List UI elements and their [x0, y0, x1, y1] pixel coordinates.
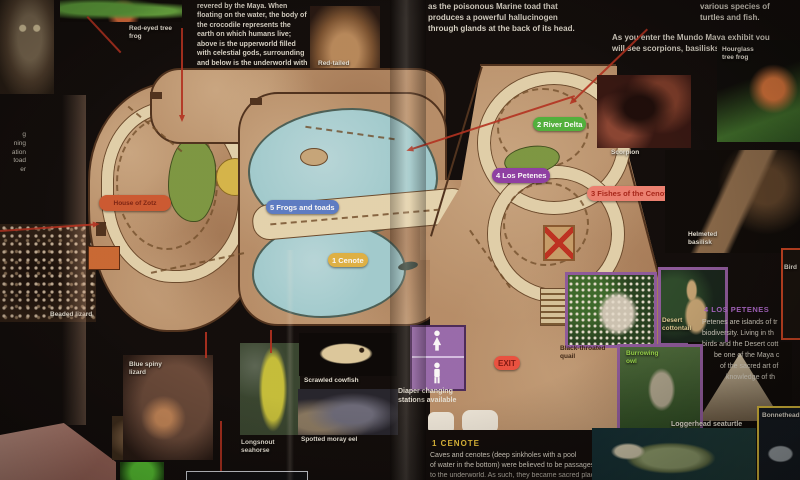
los-petenes-line: knowledge of th — [726, 373, 800, 382]
los-petenes-line: biodiversity. Living in th — [702, 329, 800, 338]
female-restroom-icon — [430, 330, 444, 357]
black-throated-quail-photo — [565, 272, 657, 348]
bonnethead-shark-label: Bonnethead shark — [762, 412, 800, 420]
station-1-cenote: 1 Cenote — [328, 253, 368, 267]
desert-cottontail-label: Desert cottontail — [662, 317, 696, 333]
house-of-zotz-label: House of Zotz — [99, 195, 171, 211]
exit-label: EXIT — [494, 356, 520, 370]
los-petenes-line: of the sacred art of — [720, 362, 800, 371]
station-2-river-delta: 2 River Delta — [533, 117, 586, 131]
cut-photo-label-fragment: Bird — [784, 264, 800, 272]
cenote-heading: 1 Cenote — [432, 439, 480, 450]
station-5-frogs-and-toads: 5 Frogs and toads — [266, 200, 339, 214]
leader-line — [270, 330, 272, 353]
station-3-fishes-of-the-cenote: 3 Fishes of the Cenote — [587, 186, 675, 201]
scorpion-label: Scorpion — [611, 149, 655, 157]
leader-line — [181, 28, 183, 116]
los-petenes-line: birds and the Desert cott — [702, 340, 800, 349]
station-4-los-petenes: 4 Los Petenes — [492, 168, 550, 183]
book-spread-photo: g ning ation toad er Beaded lizard Blue … — [0, 0, 800, 480]
green-pond — [168, 138, 216, 222]
leader-line — [205, 332, 207, 358]
los-petenes-heading: 4 Los Petenes — [704, 305, 769, 315]
los-petenes-line: Petenes are islands of tr — [702, 318, 800, 327]
map-structure — [150, 92, 162, 99]
helmeted-basilisk-label: Helmeted basilisk — [688, 231, 724, 247]
helmeted-basilisk-photo — [665, 150, 800, 253]
page-edge-band — [62, 95, 86, 425]
burrowing-owl-label: Burrowing owl — [626, 350, 666, 366]
orange-structure — [88, 246, 120, 270]
stairs — [540, 288, 568, 326]
diaper-note: Diaper changing stations available — [398, 387, 470, 406]
male-restroom-icon — [430, 362, 444, 389]
los-petenes-line: be one of the Maya c — [714, 351, 800, 360]
map-edge — [480, 64, 616, 66]
scorpion-photo — [597, 75, 691, 148]
bonnethead-shark-photo: Bonnethead shark — [757, 406, 800, 480]
restroom-block — [410, 325, 466, 391]
cut-label-box — [186, 471, 308, 480]
lagoon-island — [300, 148, 328, 166]
crossed-box-marker — [543, 225, 575, 261]
black-throated-quail-label: Black-throated quail — [560, 345, 612, 361]
loggerhead-seaturtle-photo — [592, 428, 756, 480]
hourglass-tree-frog-label: Hourglass tree frog — [722, 46, 762, 62]
map-structure — [250, 98, 262, 105]
